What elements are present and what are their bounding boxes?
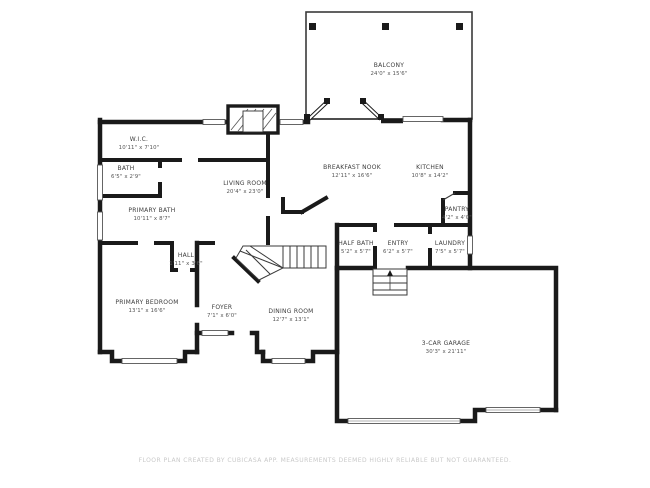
room-label-breakfast-nook: BREAKFAST NOOK: [323, 164, 382, 171]
exterior-walls: [100, 120, 470, 361]
room-label-entry: ENTRY: [388, 240, 409, 247]
room-dims-breakfast-nook: 12'11" x 16'6": [332, 173, 373, 179]
pantry-door-leaf: [443, 193, 455, 200]
room-label-kitchen: KITCHEN: [416, 164, 444, 171]
footer-disclaimer: FLOOR PLAN CREATED BY CUBICASA APP. MEAS…: [0, 457, 650, 464]
room-label-half-bath: HALF BATH: [338, 240, 374, 247]
room-dims-wic: 10'11" x 7'10": [119, 145, 160, 151]
entry-stairs: [373, 269, 407, 295]
room-dims-primary-bath: 10'11" x 8'7": [133, 216, 170, 222]
room-label-garage: 3-CAR GARAGE: [422, 340, 470, 347]
floorplan-svg: BALCONY 24'0" x 15'6" W.I.C. 10'11" x 7'…: [0, 0, 650, 488]
balcony-post: [456, 23, 463, 30]
room-dims-living-room: 20'4" x 23'0": [226, 189, 263, 195]
room-label-primary-bedroom: PRIMARY BEDROOM: [115, 299, 178, 306]
room-label-laundry: LAUNDRY: [435, 240, 465, 247]
room-dims-half-bath: 5'2" x 5'7": [341, 249, 371, 255]
room-dims-balcony: 24'0" x 15'6": [370, 71, 407, 77]
room-dims-garage: 30'3" x 21'11": [426, 349, 467, 355]
room-label-hall: HALL: [178, 252, 195, 259]
room-dims-laundry: 7'5" x 5'7": [435, 249, 465, 255]
floorplan-canvas: BALCONY 24'0" x 15'6" W.I.C. 10'11" x 7'…: [0, 0, 650, 488]
room-dims-entry: 6'2" x 5'7": [383, 249, 413, 255]
room-label-foyer: FOYER: [212, 304, 233, 311]
balcony-doors: [304, 98, 403, 121]
balcony-post: [309, 23, 316, 30]
room-dims-kitchen: 10'8" x 14'2": [411, 173, 448, 179]
room-dims-foyer: 7'1" x 6'0": [207, 313, 237, 319]
balcony-post: [382, 23, 389, 30]
windows: [98, 117, 473, 364]
room-label-bath: BATH: [118, 165, 135, 172]
room-label-balcony: BALCONY: [374, 62, 404, 69]
room-labels: BALCONY 24'0" x 15'6" W.I.C. 10'11" x 7'…: [111, 62, 472, 355]
fireplace: [228, 106, 278, 133]
room-label-dining-room: DINING ROOM: [268, 308, 313, 315]
room-dims-dining-room: 12'7" x 13'1": [272, 317, 309, 323]
room-dims-primary-bedroom: 13'1" x 16'6": [128, 308, 165, 314]
room-dims-bath: 6'5" x 2'9": [111, 174, 141, 180]
room-label-living-room: LIVING ROOM: [223, 180, 267, 187]
room-label-primary-bath: PRIMARY BATH: [128, 207, 175, 214]
room-label-pantry: PANTRY: [445, 206, 470, 213]
room-dims-hall: 1'11" x 3'6": [169, 261, 203, 267]
room-dims-pantry: 4'2" x 4'0": [442, 215, 472, 221]
room-label-wic: W.I.C.: [130, 136, 148, 143]
garage-doors: [348, 408, 540, 424]
